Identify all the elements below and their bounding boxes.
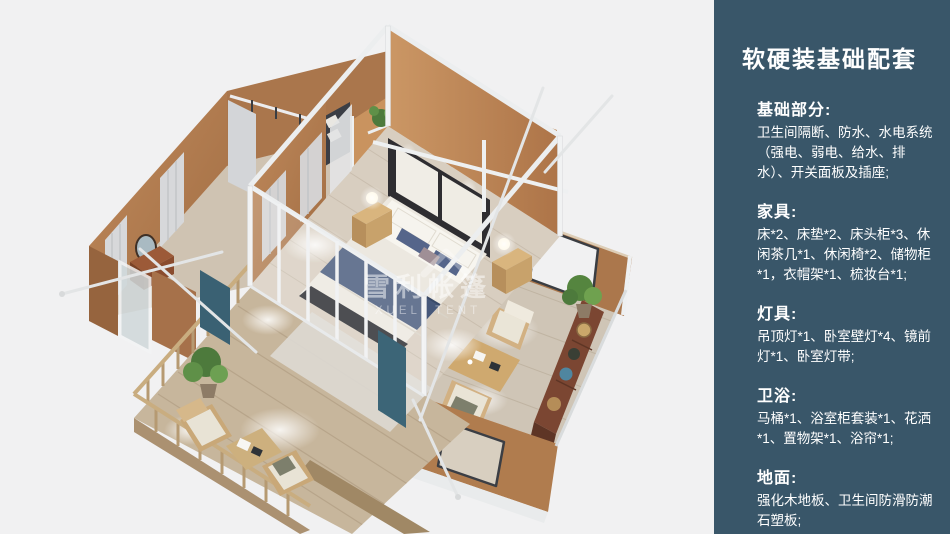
watermark-en: XUELI TENT	[375, 305, 481, 317]
section-body: 马桶*1、浴室柜套装*1、花洒*1、置物架*1、浴帘*1;	[757, 409, 935, 449]
render-area: 雪利帐篷 XUELI TENT	[0, 0, 714, 534]
section-body: 卫生间隔断、防水、水电系统（强电、弱电、给水、排水）、开关面板及插座;	[757, 123, 935, 183]
watermark-cn: 雪利帐篷	[364, 272, 492, 302]
section-body: 强化木地板、卫生间防滑防潮石塑板;	[757, 491, 935, 531]
section-flooring: 地面: 强化木地板、卫生间防滑防潮石塑板;	[757, 464, 935, 531]
teal-plate	[560, 368, 573, 381]
section-heading: 基础部分:	[757, 96, 935, 120]
isometric-house-render: 雪利帐篷 XUELI TENT	[0, 0, 714, 534]
section-furniture: 家具: 床*2、床垫*2、床头柜*3、休闲茶几*1、休闲椅*2、储物柜*1，衣帽…	[757, 198, 935, 285]
info-sidebar: 软硬装基础配套 基础部分: 卫生间隔断、防水、水电系统（强电、弱电、给水、排水）…	[714, 0, 950, 534]
section-heading: 卫浴:	[757, 382, 935, 406]
section-bathroom: 卫浴: 马桶*1、浴室柜套装*1、花洒*1、置物架*1、浴帘*1;	[757, 382, 935, 449]
section-heading: 灯具:	[757, 300, 935, 324]
tray	[577, 323, 591, 337]
section-heading: 家具:	[757, 198, 935, 222]
section-body: 吊顶灯*1、卧室壁灯*4、镜前灯*1、卧室灯带;	[757, 327, 935, 367]
dark-pot	[568, 348, 580, 360]
sidebar-title: 软硬装基础配套	[742, 40, 935, 74]
section-heading: 地面:	[757, 464, 935, 488]
basket	[547, 397, 561, 411]
page: 雪利帐篷 XUELI TENT 软硬装基础配套 基础部分: 卫生间隔断、防水、水…	[0, 0, 950, 534]
section-lighting: 灯具: 吊顶灯*1、卧室壁灯*4、镜前灯*1、卧室灯带;	[757, 300, 935, 367]
left-exterior-wall	[89, 246, 118, 336]
section-basics: 基础部分: 卫生间隔断、防水、水电系统（强电、弱电、给水、排水）、开关面板及插座…	[757, 96, 935, 183]
section-body: 床*2、床垫*2、床头柜*3、休闲茶几*1、休闲椅*2、储物柜*1，衣帽架*1、…	[757, 225, 935, 285]
